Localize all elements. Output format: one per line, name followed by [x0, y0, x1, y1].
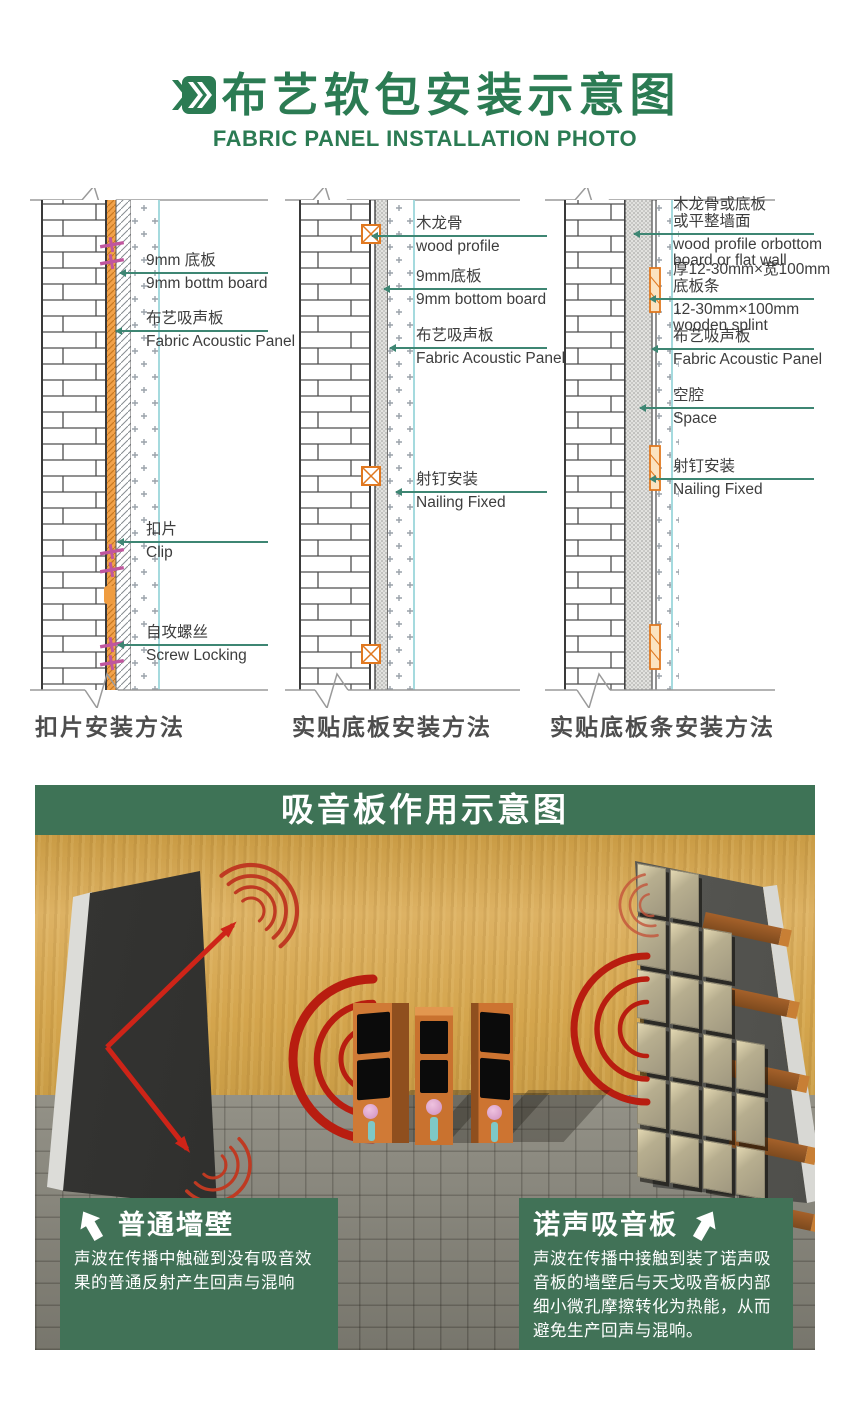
diagram-board-method: [285, 188, 550, 708]
up-right-arrow-icon: [688, 1208, 722, 1242]
speaker-right: [471, 1003, 513, 1143]
acoustic-panel-caption-box: 诺声吸音板 声波在传播中接触到装了诺声吸音板的墙壁后与天戈吸音板内部细小微孔摩擦…: [519, 1198, 793, 1350]
double-chevron-icon: [170, 72, 216, 118]
caption-splint-method: 实贴底板条安装方法: [550, 708, 775, 742]
wood-block: [104, 586, 115, 604]
leader-line: [640, 407, 814, 409]
leader-line: [650, 298, 814, 300]
leader-line: [384, 288, 547, 290]
plain-wall-title: 普通墙壁: [118, 1208, 234, 1242]
caption-board-method: 实贴底板安装方法: [292, 708, 492, 742]
leader-line: [634, 233, 814, 235]
plain-wall-description: 声波在传播中触碰到没有吸音效果的普通反射产生回声与混响: [74, 1248, 326, 1296]
leader-line: [120, 272, 268, 274]
leader-line: [390, 347, 547, 349]
speaker-left: [353, 1003, 409, 1143]
leader-line: [116, 330, 268, 332]
plain-wall-caption-box: 普通墙壁 声波在传播中触碰到没有吸音效果的普通反射产生回声与混响: [60, 1198, 338, 1350]
leader-line: [372, 235, 547, 237]
caption-clip-method: 扣片安装方法: [35, 708, 185, 742]
leader-line: [652, 348, 814, 350]
scene-title: 吸音板作用示意图: [35, 785, 815, 835]
acoustic-tile-grid: [637, 863, 767, 1204]
infographic-page: 布艺软包安装示意图 FABRIC PANEL INSTALLATION PHOT…: [0, 0, 850, 1420]
leader-line: [650, 478, 814, 480]
leader-line: [396, 491, 547, 493]
speaker-center: [415, 1007, 453, 1145]
acoustic-panel-description: 声波在传播中接触到装了诺声吸音板的墙壁后与天戈吸音板内部细小微孔摩擦转化为热能，…: [533, 1248, 781, 1344]
acoustic-panel-title: 诺声吸音板: [533, 1208, 678, 1242]
acoustic-demo-scene: 吸音板作用示意图: [35, 785, 815, 1350]
leader-line: [118, 644, 268, 646]
page-subtitle: FABRIC PANEL INSTALLATION PHOTO: [0, 126, 850, 152]
up-left-arrow-icon: [74, 1208, 108, 1242]
scene-render: 普通墙壁 声波在传播中触碰到没有吸音效果的普通反射产生回声与混响 诺声吸音板 声…: [35, 835, 815, 1350]
page-title: 布艺软包安装示意图: [222, 70, 681, 121]
page-header: 布艺软包安装示意图 FABRIC PANEL INSTALLATION PHOT…: [0, 70, 850, 152]
leader-line: [118, 541, 268, 543]
